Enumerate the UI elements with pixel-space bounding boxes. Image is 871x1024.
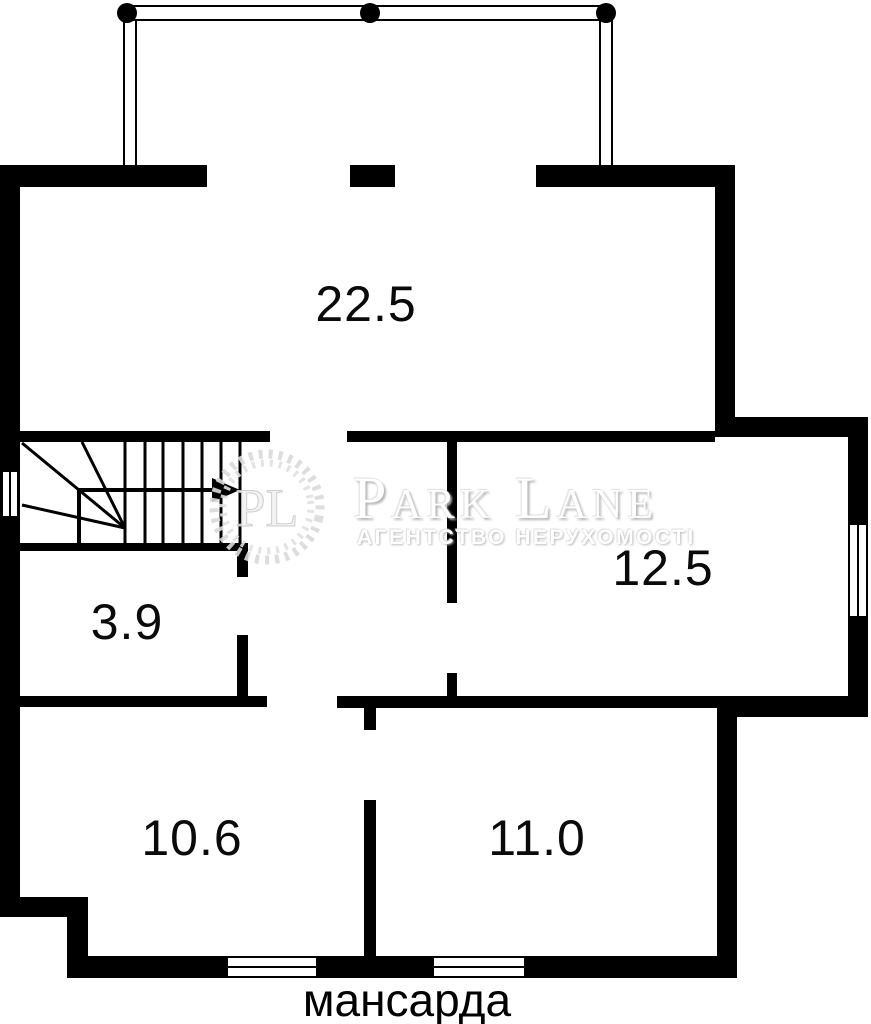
wall-stair-top (20, 431, 270, 442)
watermark-layer: PL Park Lane агентство нерухомості (0, 0, 871, 1024)
floor-plan: 22.5 12.5 3.9 10.6 11.0 мансарда PL Park… (0, 0, 871, 1024)
wall-hall-stub-lower (237, 635, 248, 696)
wall-stair-bottom-rail (20, 543, 240, 551)
window-right-mullion (857, 525, 859, 616)
watermark-monogram: PL (235, 478, 298, 538)
window-bottom-left-mullion (228, 966, 316, 968)
wall-right-lower-block (717, 696, 737, 978)
stair-direction-arrow (79, 478, 240, 543)
wall-block12-top (715, 417, 868, 437)
wall-hall-top (347, 431, 715, 442)
wall-room-split-lower (364, 800, 376, 956)
wreath-inner-ring (217, 457, 316, 556)
arrow-head-icon (212, 478, 240, 502)
wall-left-outer (0, 165, 20, 917)
wall-block12-right-upper (848, 417, 868, 523)
room-area-label-22-5: 22.5 (315, 275, 416, 333)
window-left (1, 470, 19, 518)
wall-top-left (0, 165, 207, 187)
window-left-mullion (9, 472, 11, 516)
wall-block12-bottom (717, 696, 868, 717)
room-area-label-12-5: 12.5 (612, 539, 713, 597)
wall-room-split-stub (364, 708, 376, 730)
window-right (848, 523, 868, 618)
floor-name-label: мансарда (303, 973, 511, 1024)
room-area-label-11-0: 11.0 (488, 809, 586, 867)
wall-divider-left (20, 696, 267, 707)
wall-top-right (536, 165, 735, 187)
room-area-label-3-9: 3.9 (91, 593, 164, 651)
room-area-label-10-6: 10.6 (141, 809, 242, 867)
watermark-brand-text: Park Lane (353, 468, 658, 528)
wall-top-middle (350, 165, 395, 187)
plan-linework (0, 0, 871, 1024)
balcony-railing (124, 6, 612, 165)
staircase (22, 442, 240, 543)
wall-hall-room12-upper (447, 442, 457, 603)
watermark-wreath: PL (0, 0, 871, 1024)
window-bottom-right-mullion (434, 966, 524, 968)
wreath-outer-ring (204, 444, 330, 570)
wall-hall-room12-stub (447, 673, 457, 696)
wall-right-upper-block (715, 165, 735, 435)
balcony-posts (117, 3, 616, 23)
